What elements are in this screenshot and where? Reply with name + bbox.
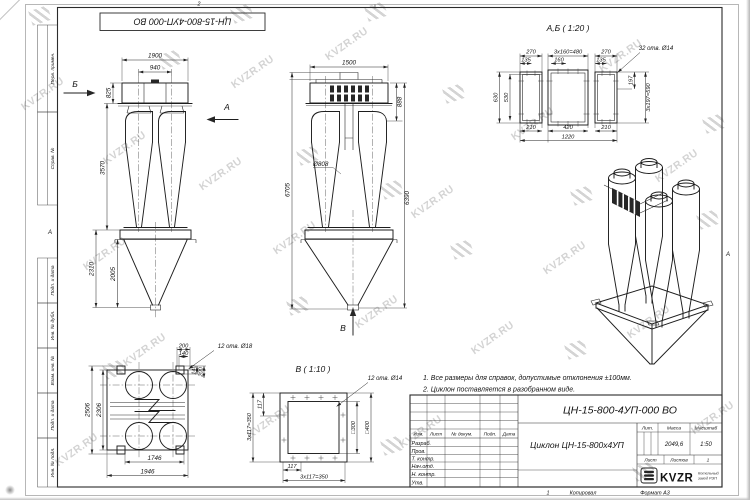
dim-label: 197 bbox=[629, 75, 635, 85]
tb-row-label: Н. контр. bbox=[412, 472, 436, 478]
zone-marker-right: А bbox=[725, 252, 730, 258]
dim-label: 200 bbox=[199, 366, 205, 377]
tb-mass-label: Масса bbox=[667, 426, 682, 432]
tb-col-header: Дата bbox=[502, 432, 516, 438]
margin-label: Инв. № дубл. bbox=[50, 311, 56, 341]
dim-label: 270 bbox=[600, 50, 611, 56]
zone-marker-top: 2 bbox=[197, 2, 201, 8]
margin-label: Подп. и дата bbox=[50, 400, 56, 430]
bolt-holes bbox=[282, 395, 346, 461]
dim-label: 940 bbox=[150, 65, 161, 72]
dim-label: 420 bbox=[563, 125, 573, 131]
tb-col-header: Изм. bbox=[413, 432, 423, 438]
dim-label: 135 bbox=[596, 58, 606, 64]
tb-scale-label: Масштаб bbox=[695, 426, 718, 432]
holes-callout: 32 отв. Ø14 bbox=[639, 46, 674, 52]
dim-label: 3х117=350 bbox=[247, 412, 253, 441]
tb-row-label: Т. контр. bbox=[412, 456, 435, 462]
view-isometric bbox=[591, 159, 713, 365]
margin-label: Подп. и дата bbox=[50, 265, 56, 295]
dim-label: 117 bbox=[258, 399, 264, 409]
sheet-frame: 2 А А ЦН-15-800-4УП-000 ВО Перв. примен.… bbox=[26, 2, 739, 496]
tb-col-header: Лист bbox=[429, 432, 442, 438]
tb-row-label: Пров. bbox=[412, 449, 426, 455]
scan-edge-right bbox=[746, 0, 750, 500]
inlet-grille bbox=[330, 86, 369, 102]
dim-label: 117 bbox=[287, 464, 297, 470]
title-block: Изм. Лист № докум. Подп. Дата Разраб. Пр… bbox=[410, 395, 722, 497]
view-side-elevation: 1900 940 825 3570 2310 2005 Б А bbox=[64, 53, 238, 319]
dim-label: 2005 bbox=[110, 267, 117, 283]
tb-row-label: Разраб. bbox=[412, 441, 432, 447]
dim-label: 888 bbox=[397, 96, 404, 107]
tb-sheets-label: Листов bbox=[669, 458, 688, 464]
dim-label: 140 bbox=[179, 351, 189, 357]
technical-notes: 1. Все размеры для справок, допустимые о… bbox=[422, 374, 632, 394]
tb-format-label: Формат А3 bbox=[640, 491, 670, 497]
company-sub: Котельный bbox=[698, 472, 720, 476]
top-stamp-designation: ЦН-15-800-4УП-000 ВО bbox=[134, 16, 232, 26]
dim-label: 2306 bbox=[96, 403, 103, 419]
dim-label: 270 bbox=[525, 50, 536, 56]
note-line: 1. Все размеры для справок, допустимые о… bbox=[423, 374, 632, 382]
tb-scale-value: 1:50 bbox=[700, 442, 712, 448]
tb-sheets-value: 1 bbox=[707, 458, 710, 464]
dim-label: 2506 bbox=[85, 403, 92, 419]
dim-label: □300 bbox=[351, 420, 357, 434]
cyclone bbox=[646, 192, 673, 327]
dim-label: 3х197=590 bbox=[646, 83, 652, 112]
dim-label: 6705 bbox=[285, 183, 292, 198]
frame-left-columns: Перв. примен. Справ. № Подп. и дата Инв.… bbox=[38, 25, 58, 487]
tb-sheet-label: Лист bbox=[643, 458, 656, 464]
dim-label: 2310 bbox=[89, 262, 96, 278]
view-arrow-label-a: А bbox=[223, 102, 230, 112]
margin-label: Перв. примен. bbox=[50, 53, 56, 85]
tb-col-header: № докум. bbox=[451, 432, 472, 438]
drawing-sheet: KVZR.RU KVZR.RU KVZR.RU KVZR.RU KVZR.RU … bbox=[0, 0, 750, 500]
holes-callout: 12 отв. Ø18 bbox=[218, 344, 253, 350]
tb-row-label: Нач.отд. bbox=[412, 464, 435, 470]
margin-label: Инв. № подл. bbox=[50, 448, 56, 478]
tb-col-header: Подп. bbox=[484, 432, 497, 438]
zone-marker-left: А bbox=[47, 230, 52, 236]
dim-label: 6390 bbox=[404, 191, 411, 206]
tb-copied-label: Копировал bbox=[570, 491, 597, 497]
dim-label: Ø808 bbox=[312, 161, 329, 168]
dim-label: 3х117=350 bbox=[300, 475, 329, 481]
view-front-elevation: Ø808 1500 888 6705 6390 В bbox=[285, 60, 412, 336]
company-logo: KVZR Котельный завод РЭП bbox=[641, 468, 720, 485]
dim-label: 3570 bbox=[100, 161, 107, 176]
tb-lit-label: Лит. bbox=[641, 426, 653, 432]
tb-copy-num: 1 bbox=[547, 491, 550, 497]
note-line: 2. Циклон поставляется в разобранном вид… bbox=[422, 386, 575, 394]
dim-label: □400 bbox=[365, 420, 371, 434]
dim-label: 210 bbox=[600, 125, 611, 131]
dim-label: 530 bbox=[504, 92, 510, 102]
dim-label: 210 bbox=[525, 125, 536, 131]
section-title: А,Б ( 1:20 ) bbox=[546, 23, 590, 33]
inlet-manifold bbox=[604, 185, 668, 217]
drawing-canvas: 2 А А ЦН-15-800-4УП-000 ВО Перв. примен.… bbox=[0, 0, 750, 500]
dim-label: 1746 bbox=[147, 455, 162, 462]
margin-label: Справ. № bbox=[50, 148, 56, 170]
scan-speck bbox=[5, 485, 15, 495]
view-plan: 200 140 140 200 2506 2306 1746 1946 12 о… bbox=[85, 344, 253, 479]
view-section-v: В ( 1:10 ) 3х117=350 117 117 3х117=350 □… bbox=[247, 364, 403, 483]
dim-label: 3х160=480 bbox=[554, 50, 583, 56]
view-arrow-label-v: В bbox=[340, 323, 346, 333]
dim-label: 135 bbox=[521, 58, 531, 64]
tb-product-name: Циклон ЦН-15-800х4УП bbox=[530, 440, 625, 450]
dim-label: 1220 bbox=[562, 135, 575, 141]
holes-callout: 12 отв. Ø14 bbox=[368, 376, 403, 382]
company-sub: завод РЭП bbox=[697, 477, 717, 481]
dim-label: 1946 bbox=[140, 469, 155, 476]
tb-mass-value: 2049,6 bbox=[664, 442, 684, 448]
tb-row-label: Утв. bbox=[411, 480, 424, 486]
dim-label: 200 bbox=[178, 344, 189, 350]
view-section-ab: А,Б ( 1:20 ) 270 3х160=480 270 135 160 1… bbox=[494, 23, 674, 143]
dim-label: 160 bbox=[554, 58, 564, 64]
company-brand: KVZR bbox=[660, 473, 694, 485]
view-arrow-label-b: Б bbox=[72, 79, 78, 89]
dim-label: 825 bbox=[106, 87, 113, 98]
dim-label: 630 bbox=[494, 92, 500, 102]
dim-label: 1900 bbox=[148, 53, 163, 60]
section-title: В ( 1:10 ) bbox=[296, 364, 331, 374]
margin-label: Взам. инв. № bbox=[50, 356, 56, 386]
dim-label: 1500 bbox=[342, 60, 357, 67]
tb-designation: ЦН-15-800-4УП-000 ВО bbox=[563, 405, 677, 417]
